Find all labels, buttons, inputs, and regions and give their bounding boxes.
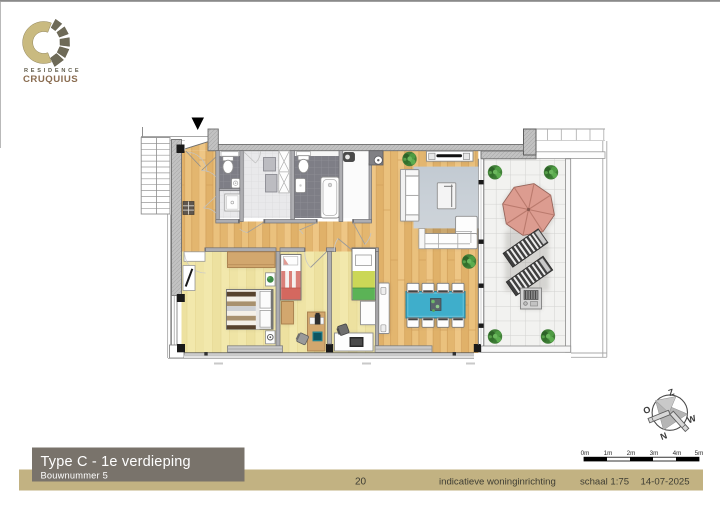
svg-text:4m: 4m bbox=[673, 450, 682, 457]
svg-text:2m: 2m bbox=[627, 450, 636, 457]
svg-text:5m: 5m bbox=[695, 450, 704, 457]
svg-text:1m: 1m bbox=[604, 450, 613, 457]
svg-text:schaal 1:75: schaal 1:75 bbox=[580, 477, 629, 488]
svg-text:indicatieve woninginrichting: indicatieve woninginrichting bbox=[439, 477, 556, 488]
svg-text:Type C - 1e verdieping: Type C - 1e verdieping bbox=[41, 454, 191, 470]
svg-text:Bouwnummer 5: Bouwnummer 5 bbox=[41, 471, 109, 481]
svg-text:20: 20 bbox=[355, 477, 367, 488]
svg-text:CRUQUIUS: CRUQUIUS bbox=[23, 74, 78, 85]
svg-text:14-07-2025: 14-07-2025 bbox=[641, 477, 690, 488]
svg-text:3m: 3m bbox=[650, 450, 659, 457]
svg-text:0m: 0m bbox=[581, 450, 590, 457]
